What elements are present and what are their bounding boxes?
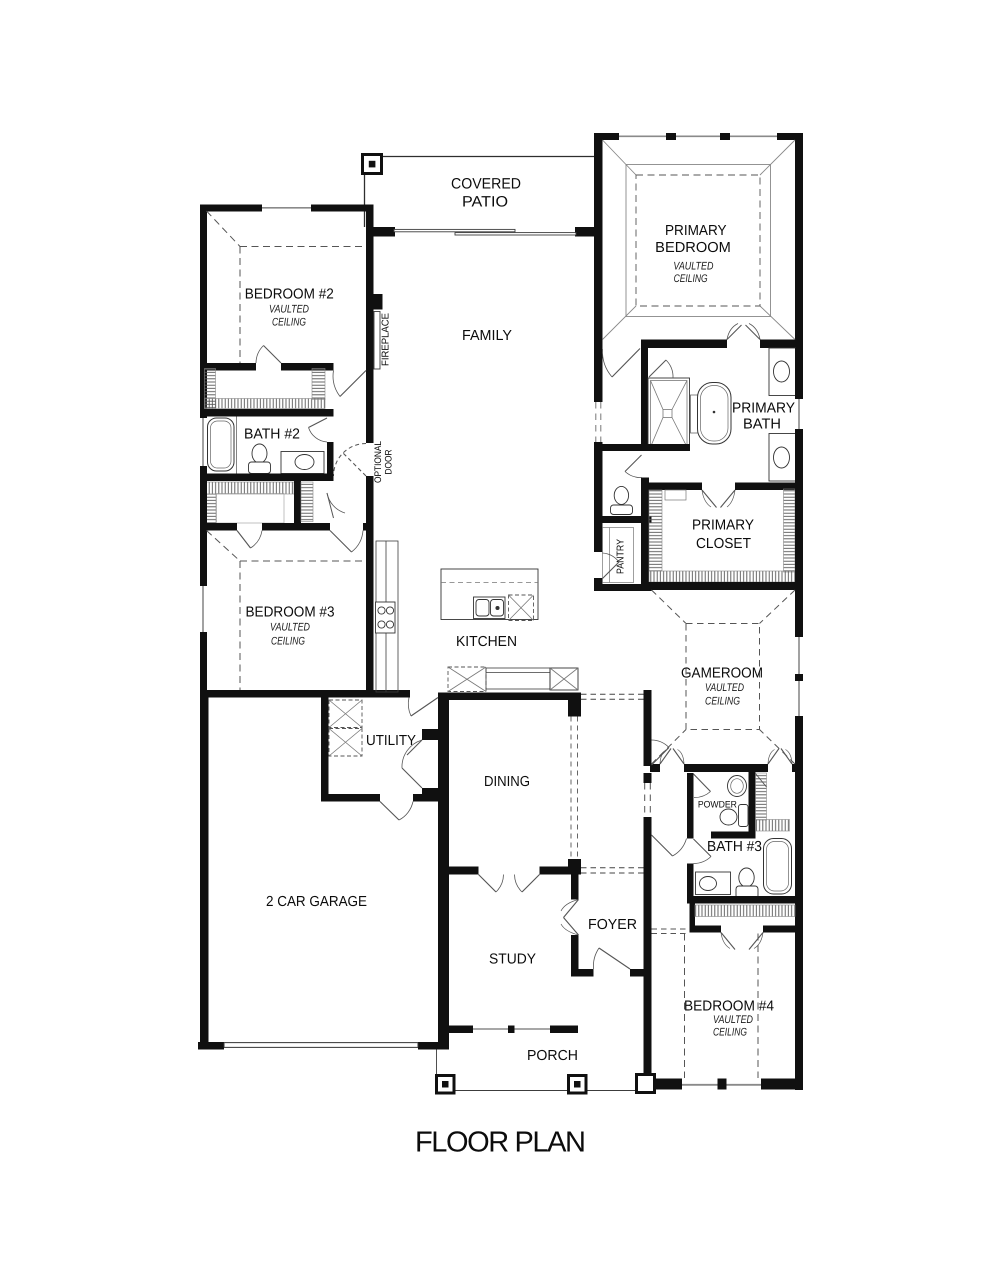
svg-text:KITCHEN: KITCHEN — [456, 634, 517, 650]
svg-text:VAULTED: VAULTED — [270, 622, 310, 634]
svg-text:BATH #3: BATH #3 — [707, 839, 762, 855]
svg-text:BEDROOM #3: BEDROOM #3 — [246, 605, 335, 621]
svg-text:BEDROOM: BEDROOM — [655, 240, 731, 256]
svg-text:CLOSET: CLOSET — [696, 536, 751, 552]
svg-text:FIREPLACE: FIREPLACE — [381, 313, 392, 366]
svg-text:DOOR: DOOR — [384, 449, 395, 474]
svg-text:VAULTED: VAULTED — [673, 261, 713, 273]
svg-text:PRIMARY: PRIMARY — [732, 401, 795, 417]
svg-text:VAULTED: VAULTED — [269, 304, 309, 316]
svg-text:2 CAR GARAGE: 2 CAR GARAGE — [266, 894, 367, 910]
svg-text:CEILING: CEILING — [705, 696, 740, 708]
svg-text:VAULTED: VAULTED — [705, 682, 744, 694]
svg-text:BATH #2: BATH #2 — [244, 427, 300, 443]
svg-text:CEILING: CEILING — [272, 317, 306, 329]
svg-text:PATIO: PATIO — [462, 194, 508, 211]
svg-text:FOYER: FOYER — [588, 917, 637, 933]
svg-text:BEDROOM #2: BEDROOM #2 — [245, 287, 334, 303]
svg-text:BEDROOM #4: BEDROOM #4 — [684, 999, 774, 1015]
svg-text:CEILING: CEILING — [271, 636, 305, 648]
svg-text:PRIMARY: PRIMARY — [692, 518, 754, 534]
svg-text:PORCH: PORCH — [527, 1048, 578, 1064]
svg-text:DINING: DINING — [484, 774, 530, 790]
svg-text:OPTIONAL: OPTIONAL — [373, 441, 384, 483]
svg-text:POWDER: POWDER — [698, 800, 737, 811]
svg-text:STUDY: STUDY — [489, 952, 536, 968]
svg-text:PANTRY: PANTRY — [616, 539, 627, 574]
svg-text:GAMEROOM: GAMEROOM — [681, 666, 763, 682]
svg-text:UTILITY: UTILITY — [366, 733, 416, 749]
svg-text:CEILING: CEILING — [713, 1027, 747, 1039]
svg-text:FAMILY: FAMILY — [462, 328, 512, 344]
svg-text:BATH: BATH — [743, 417, 781, 433]
svg-text:VAULTED: VAULTED — [713, 1014, 753, 1026]
svg-text:FLOOR PLAN: FLOOR PLAN — [415, 1127, 586, 1159]
svg-text:COVERED: COVERED — [451, 176, 521, 193]
svg-text:CEILING: CEILING — [674, 273, 708, 285]
svg-text:PRIMARY: PRIMARY — [665, 223, 727, 239]
